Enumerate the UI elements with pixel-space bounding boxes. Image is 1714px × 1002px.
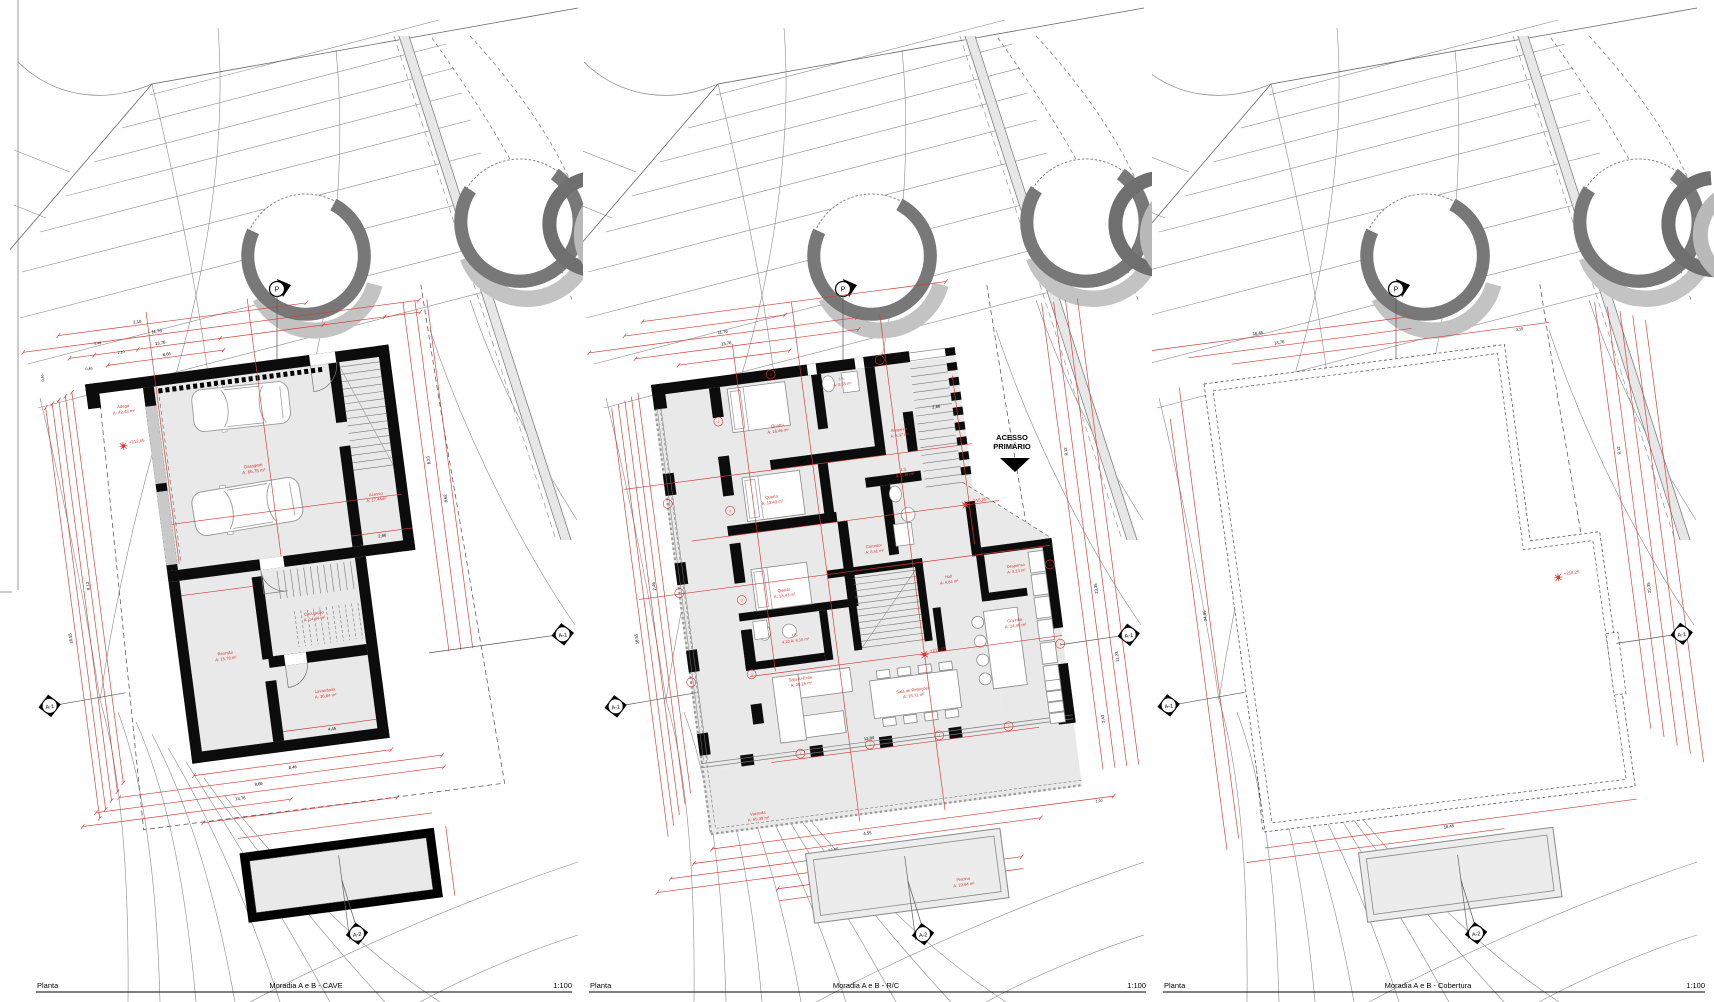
svg-text:1:100: 1:100 bbox=[1686, 981, 1705, 990]
svg-text:A-1: A-1 bbox=[611, 704, 620, 711]
svg-text:8,66: 8,66 bbox=[162, 351, 171, 357]
svg-text:4,55: 4,55 bbox=[863, 830, 872, 836]
svg-text:1:100: 1:100 bbox=[553, 981, 572, 990]
svg-text:16,45: 16,45 bbox=[1252, 330, 1264, 336]
svg-text:Planta: Planta bbox=[590, 981, 612, 990]
svg-text:A-1: A-1 bbox=[1164, 703, 1173, 710]
svg-text:1:100: 1:100 bbox=[1127, 981, 1146, 990]
svg-text:A-2: A-2 bbox=[353, 932, 362, 939]
svg-text:13,76: 13,76 bbox=[1274, 339, 1286, 345]
svg-text:11,23: 11,23 bbox=[1114, 650, 1120, 661]
svg-text:24,35: 24,35 bbox=[1202, 610, 1208, 622]
svg-text:13,76: 13,76 bbox=[155, 340, 167, 346]
svg-text:A: 42,43 m²: A: 42,43 m² bbox=[113, 408, 136, 416]
svg-text:A-2: A-2 bbox=[1472, 931, 1481, 938]
svg-text:16,55: 16,55 bbox=[67, 632, 73, 644]
svg-text:A-1: A-1 bbox=[558, 632, 567, 639]
svg-text:8,46: 8,46 bbox=[288, 764, 297, 770]
svg-text:13,76: 13,76 bbox=[721, 340, 733, 346]
svg-text:Moradia A e B - R/C: Moradia A e B - R/C bbox=[833, 981, 900, 990]
svg-text:8,66: 8,66 bbox=[254, 781, 263, 787]
svg-text:2,43: 2,43 bbox=[1100, 714, 1106, 723]
svg-text:+212,65: +212,65 bbox=[129, 438, 146, 445]
svg-text:Moradia A e B - CAVE: Moradia A e B - CAVE bbox=[269, 981, 342, 990]
svg-text:0,46: 0,46 bbox=[40, 374, 45, 381]
svg-text:8,12: 8,12 bbox=[1616, 445, 1622, 454]
svg-text:3,15: 3,15 bbox=[1516, 327, 1524, 332]
svg-text:23,35: 23,35 bbox=[1093, 582, 1099, 594]
svg-text:1,00: 1,00 bbox=[1095, 799, 1102, 804]
svg-text:8,12: 8,12 bbox=[1063, 446, 1069, 455]
svg-text:2,10: 2,10 bbox=[133, 319, 142, 325]
svg-text:13,76: 13,76 bbox=[235, 795, 247, 801]
svg-text:8,23: 8,23 bbox=[425, 455, 431, 464]
svg-text:16,55: 16,55 bbox=[633, 633, 639, 645]
svg-text:ACESSO: ACESSO bbox=[996, 433, 1028, 442]
svg-text:16,45: 16,45 bbox=[1443, 823, 1455, 829]
svg-text:23,35: 23,35 bbox=[1646, 581, 1652, 593]
svg-text:Planta: Planta bbox=[1164, 981, 1186, 990]
svg-text:Planta: Planta bbox=[37, 981, 59, 990]
svg-text:PRIMÁRIO: PRIMÁRIO bbox=[993, 442, 1031, 451]
svg-text:11,76: 11,76 bbox=[717, 328, 728, 334]
svg-text:A-1: A-1 bbox=[1124, 633, 1133, 640]
svg-text:A-2: A-2 bbox=[919, 932, 928, 939]
svg-text:0,46: 0,46 bbox=[85, 366, 92, 371]
svg-text:11,76: 11,76 bbox=[151, 328, 162, 334]
svg-text:2,10: 2,10 bbox=[117, 350, 124, 355]
svg-text:A-1: A-1 bbox=[45, 704, 54, 711]
svg-text:Moradia A e B - Cobertura: Moradia A e B - Cobertura bbox=[1385, 981, 1473, 990]
svg-text:8,62: 8,62 bbox=[442, 493, 448, 502]
svg-text:A-1: A-1 bbox=[1677, 632, 1686, 639]
